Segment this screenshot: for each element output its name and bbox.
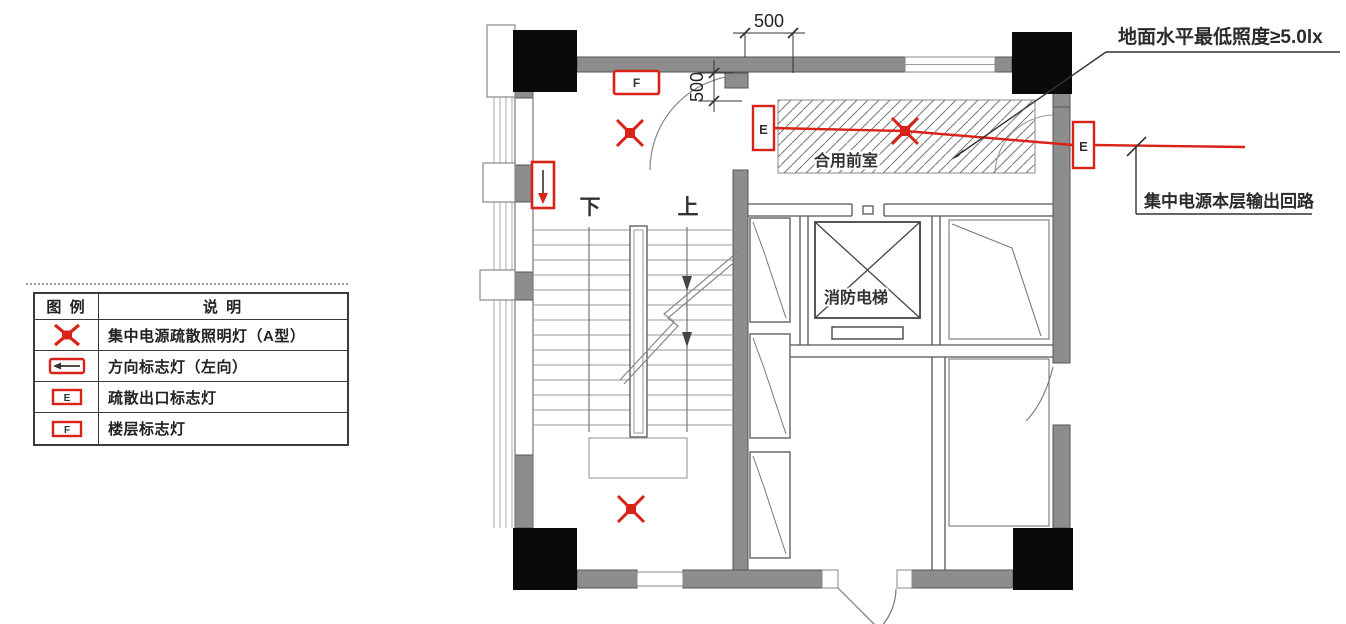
left-window-low (480, 270, 515, 300)
exit-sign-right-letter: E (1079, 139, 1088, 154)
stairs: 下 上 (533, 196, 744, 478)
left-window-top (487, 25, 515, 97)
top-wall-right-segment (995, 57, 1012, 72)
walkline-arrow-1 (682, 276, 692, 291)
stair-core (630, 226, 647, 437)
right-room-bottom (949, 359, 1049, 526)
left-facade (494, 97, 512, 528)
left-pier-3 (515, 455, 533, 528)
stair-down-label: 下 (580, 196, 601, 219)
direction-sign-down (532, 162, 554, 208)
elevator-door-mark (863, 206, 873, 214)
emergency-light-top (617, 120, 643, 146)
elevator-block (748, 204, 1053, 570)
exit-sign-left-letter: E (759, 122, 768, 137)
floor-plan: 下 上 合用前室 消防电梯 (0, 0, 1346, 624)
bottom-opening (637, 572, 683, 586)
right-rooms (949, 220, 1053, 526)
column-bottom-left (513, 528, 577, 590)
exit-sign-left: E (753, 106, 774, 150)
dim-top-label: 500 (754, 11, 784, 31)
left-pier-1 (515, 165, 533, 202)
bottom-wall-seg1 (577, 570, 637, 588)
walkline-arrow-2 (682, 332, 692, 347)
circuit-text: 集中电源本层输出回路 (1143, 191, 1315, 211)
stair-lobby-wall (733, 170, 748, 570)
stair-landing (589, 438, 687, 478)
bottom-wall-seg2 (683, 570, 822, 588)
left-window-mid (483, 163, 515, 202)
column-top-left (513, 30, 577, 92)
dim-side-label: 500 (687, 72, 707, 102)
bottom-door-jamb-right (897, 570, 912, 588)
elevator-label: 消防电梯 (824, 288, 888, 307)
right-wall-lower (1053, 425, 1070, 528)
elevator-counterweight (832, 327, 903, 339)
column-top-right (1012, 32, 1072, 94)
emergency-light-bottom (618, 496, 644, 522)
lobby-label: 合用前室 (814, 151, 878, 170)
bottom-wall-seg3 (912, 570, 1013, 588)
bottom-door (838, 588, 896, 624)
floor-sign-letter: F (633, 76, 640, 90)
left-window-boxes (480, 25, 515, 300)
exit-sign-right: E (1073, 122, 1094, 168)
bottom-door-jamb-left (822, 570, 838, 588)
illuminance-text: 地面水平最低照度≥5.0lx (1118, 25, 1323, 48)
elevator-cab: 消防电梯 (815, 222, 920, 339)
stair-up-label: 上 (678, 196, 699, 219)
circuit-annotation: 集中电源本层输出回路 (1127, 137, 1315, 214)
column-bottom-right (1013, 528, 1073, 590)
right-room-top (949, 220, 1049, 339)
left-pier-2 (515, 272, 533, 300)
